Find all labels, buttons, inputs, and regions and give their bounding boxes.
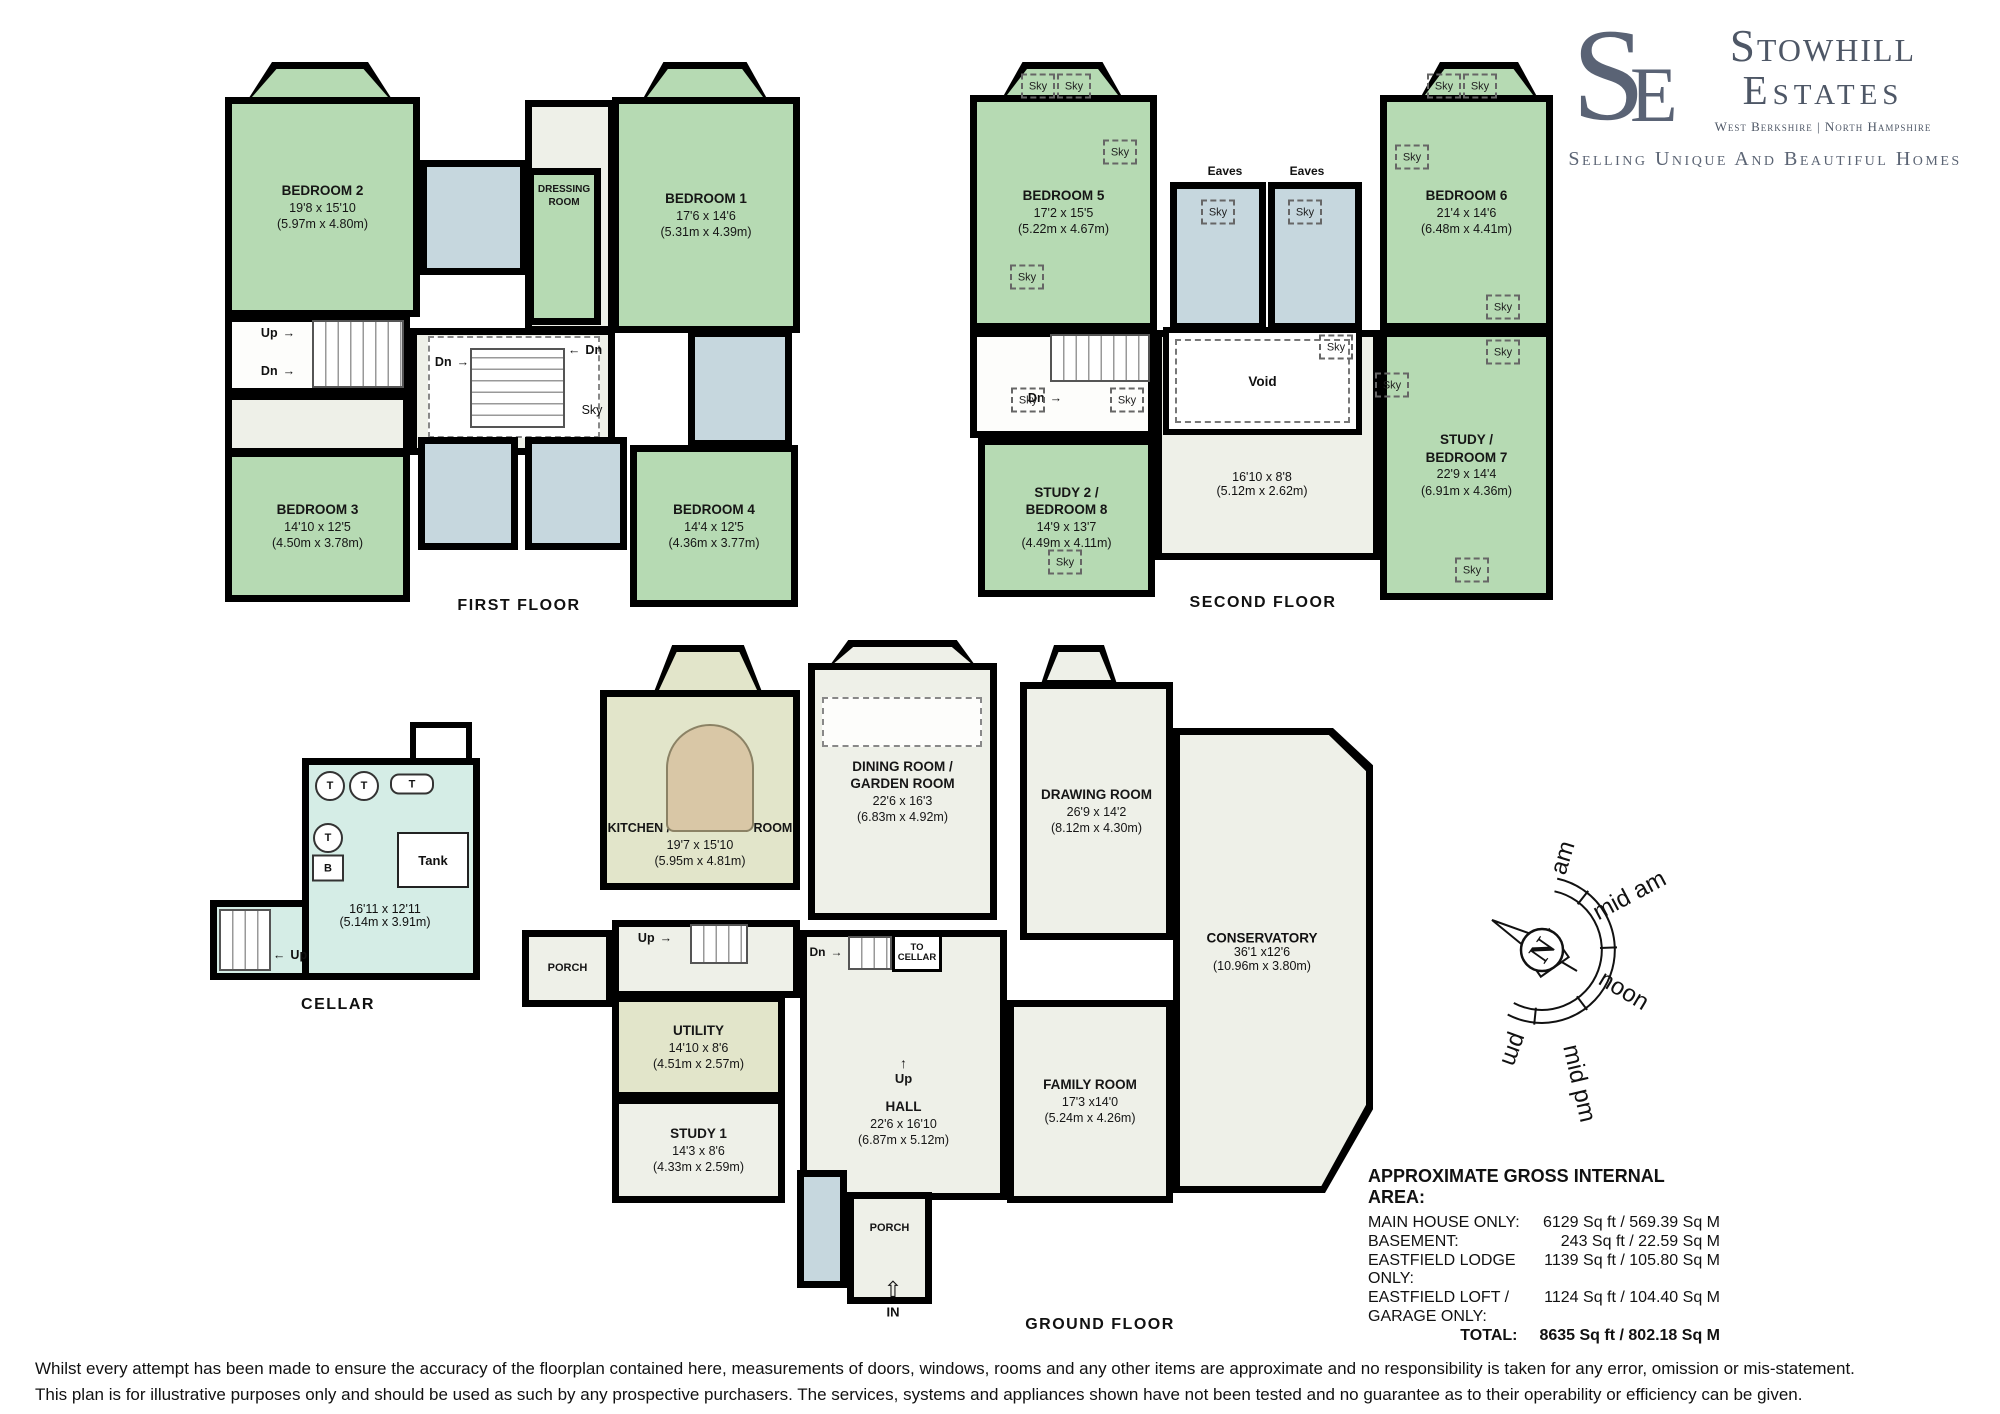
room-dims-ft: 14'10 x 12'5 [284, 519, 351, 535]
room-name: HALL [886, 1098, 922, 1116]
room-dims-ft: 19'7 x 15'10 [667, 837, 734, 853]
stairs [690, 924, 748, 964]
first-floor-caption: FIRST FLOOR [457, 597, 580, 615]
room-dims-ft: 21'4 x 14'6 [1437, 205, 1497, 221]
area-table: APPROXIMATE GROSS INTERNAL AREA: MAIN HO… [1368, 1166, 1720, 1346]
disclaimer: Whilst every attempt has been made to en… [35, 1356, 1975, 1407]
to-cellar-box: TO CELLAR [892, 934, 942, 972]
skylight-label: Sky [1463, 74, 1497, 99]
logo-name-line1: Stowhill [1692, 24, 1954, 69]
disclaimer-line-2: This plan is for illustrative purposes o… [35, 1382, 1975, 1408]
room-name: BEDROOM 1 [665, 190, 747, 208]
room-utility: UTILITY 14'10 x 8'6 (4.51m x 2.57m) [612, 995, 785, 1099]
stairs [470, 348, 565, 428]
entrance-in-label: IN [887, 1305, 900, 1320]
room-dims-ft: 17'3 x14'0 [1062, 1094, 1118, 1110]
room-dims-ft: 17'6 x 14'6 [676, 208, 736, 224]
room-dims-ft: 19'8 x 15'10 [289, 200, 356, 216]
arrow-right-icon: → [831, 945, 843, 959]
stairs [312, 320, 404, 388]
room-name-2: BEDROOM 7 [1426, 449, 1508, 467]
room-dims-ft: 26'9 x 14'2 [1067, 804, 1127, 820]
second-floor-caption: SECOND FLOOR [1190, 594, 1337, 612]
room-name: DINING ROOM / [852, 758, 953, 776]
room-bedroom-5: BEDROOM 5 17'2 x 15'5 (5.22m x 4.67m) [970, 95, 1157, 330]
room-name: STUDY / [1440, 431, 1493, 449]
room-bathroom-2 [418, 437, 518, 550]
room-name: UTILITY [673, 1022, 724, 1040]
room-porch-left: PORCH [522, 930, 613, 1007]
kitchen-island [666, 724, 754, 832]
area-row-label: EASTFIELD LODGE ONLY: [1368, 1252, 1544, 1290]
room-name: BEDROOM 2 [282, 182, 364, 200]
dining-step-area [822, 697, 982, 747]
table-row: BASEMENT: 243 Sq ft / 22.59 Sq M [1368, 1233, 1720, 1252]
room-name: STUDY 1 [670, 1125, 727, 1143]
cellar-dims-ft: 16'11 x 12'11 [349, 902, 421, 916]
arrow-right-icon: → [660, 931, 673, 945]
room-dims-m: (8.12m x 4.30m) [1051, 820, 1142, 836]
skylight-label: Sky [1110, 388, 1144, 413]
cellar-tank-t: T [349, 771, 379, 801]
room-bedroom-6: BEDROOM 6 21'4 x 14'6 (6.48m x 4.41m) [1380, 95, 1553, 330]
room-dims-ft: 14'9 x 13'7 [1037, 519, 1097, 535]
ground-floor-caption: GROUND FLOOR [1025, 1316, 1175, 1334]
area-row-value: 6129 Sq ft / 569.39 Sq M [1543, 1214, 1720, 1233]
room-study-1: STUDY 1 14'3 x 8'6 (4.33m x 2.59m) [612, 1097, 785, 1203]
area-table-title: APPROXIMATE GROSS INTERNAL AREA: [1368, 1166, 1720, 1208]
table-row: EASTFIELD LODGE ONLY: 1139 Sq ft / 105.8… [1368, 1252, 1720, 1290]
room-name-2: ROOM [548, 196, 579, 209]
room-name: BEDROOM 3 [277, 501, 359, 519]
logo-region: West Berkshire | North Hampshire [1692, 119, 1954, 135]
area-row-value: 8635 Sq ft / 802.18 Sq M [1539, 1327, 1720, 1346]
room-name: BEDROOM 5 [1023, 187, 1105, 205]
stairs-down-label: Dn→ [435, 355, 469, 369]
room-dims-ft: 14'10 x 8'6 [669, 1040, 729, 1056]
stairs-down-label: ←Dn [568, 343, 602, 357]
compass-label-am: am [1545, 838, 1581, 878]
room-bathroom-3 [525, 437, 627, 550]
room-dims-ft: 17'2 x 15'5 [1034, 205, 1094, 221]
cellar-tank-t: T [315, 771, 345, 801]
room-bedroom-1: BEDROOM 1 17'6 x 14'6 (5.31m x 4.39m) [612, 97, 800, 333]
skylight-label: Sky [1319, 335, 1353, 360]
conservatory-dims-m: (10.96m x 3.80m) [1213, 959, 1311, 973]
area-row-label: EASTFIELD LOFT / GARAGE ONLY: [1368, 1289, 1544, 1327]
arrow-left-icon: ← [568, 343, 581, 357]
stairs-down-label: Dn→ [810, 945, 843, 959]
skylight-label: Sky [1201, 200, 1235, 225]
first-floor-hall [225, 393, 410, 455]
conservatory-dims-ft: 36'1 x12'6 [1234, 945, 1290, 959]
arrow-right-icon: → [457, 355, 470, 369]
void-dims-m: (5.12m x 2.62m) [1216, 484, 1307, 498]
room-drawing: DRAWING ROOM 26'9 x 14'2 (8.12m x 4.30m) [1020, 682, 1173, 940]
stairs-up-label: Up→ [261, 326, 295, 340]
compass-rose: N am mid am noon mid pm pm [1420, 820, 1720, 1140]
room-name: BEDROOM 4 [673, 501, 755, 519]
table-row: EASTFIELD LOFT / GARAGE ONLY: 1124 Sq ft… [1368, 1289, 1720, 1327]
compass-label-pm: pm [1496, 1029, 1533, 1070]
table-row-total: TOTAL: 8635 Sq ft / 802.18 Sq M [1368, 1327, 1720, 1346]
eaves-label: Eaves [1290, 164, 1325, 178]
room-dims-m: (4.36m x 3.77m) [668, 535, 759, 551]
logo-monogram: S E [1572, 14, 1692, 144]
skylight-label: Sky [1010, 265, 1044, 290]
room-name: DRAWING ROOM [1041, 786, 1152, 804]
room-cloakroom-wc [797, 1170, 847, 1288]
room-bedroom-2: BEDROOM 2 19'8 x 15'10 (5.97m x 4.80m) [225, 97, 420, 317]
room-dims-m: (4.33m x 2.59m) [653, 1159, 744, 1175]
compass-label-mid-pm: mid pm [1557, 1042, 1601, 1125]
skylight-label: Sky [1021, 74, 1055, 99]
room-bedroom-3: BEDROOM 3 14'10 x 12'5 (4.50m x 3.78m) [225, 450, 410, 602]
area-row-label: MAIN HOUSE ONLY: [1368, 1214, 1520, 1233]
skylight-label: Sky [1427, 74, 1461, 99]
skylight-label: Sky [1103, 140, 1137, 165]
skylight-label: Sky [1395, 145, 1429, 170]
skylight-label: Sky [1375, 373, 1409, 398]
stairs-up-label: Up [895, 1071, 912, 1086]
floorplan-page: BEDROOM 2 19'8 x 15'10 (5.97m x 4.80m) D… [0, 0, 2000, 1414]
entrance-arrow-icon: ⇧ [884, 1277, 902, 1303]
room-dims-ft: 14'4 x 12'5 [684, 519, 744, 535]
room-dims-m: (5.31m x 4.39m) [660, 224, 751, 240]
table-row: MAIN HOUSE ONLY: 6129 Sq ft / 569.39 Sq … [1368, 1214, 1720, 1233]
arrow-left-icon: ← [273, 948, 286, 962]
cellar-tank: Tank [397, 832, 469, 888]
stairs-up-label: Up→ [638, 931, 672, 945]
room-bedroom-4: BEDROOM 4 14'4 x 12'5 (4.36m x 3.77m) [630, 445, 798, 607]
skylight-label: Sky [1486, 340, 1520, 365]
area-row-value: 1139 Sq ft / 105.80 Sq M [1544, 1252, 1720, 1290]
skylight-label: Sky [1288, 200, 1322, 225]
cellar-dims-m: (5.14m x 3.91m) [339, 915, 430, 929]
cellar-stairs [219, 909, 271, 971]
room-name-2: GARDEN ROOM [850, 775, 954, 793]
room-dims-m: (6.83m x 4.92m) [857, 809, 948, 825]
cellar-stairs [848, 936, 892, 970]
area-row-label: BASEMENT: [1368, 1233, 1459, 1252]
skylight-label: Sky [1057, 74, 1091, 99]
room-dims-m: (5.22m x 4.67m) [1018, 221, 1109, 237]
room-dims-ft: 22'6 x 16'3 [873, 793, 933, 809]
arrow-right-icon: → [283, 364, 296, 378]
void-dims-ft: 16'10 x 8'8 [1232, 470, 1292, 484]
porch-label: PORCH [548, 961, 588, 975]
logo-monogram-e: E [1630, 50, 1678, 140]
eaves-label: Eaves [1208, 164, 1243, 178]
stairs-down-label: Dn→ [261, 364, 295, 378]
area-row-label: TOTAL: [1460, 1327, 1517, 1346]
room-name-2: BEDROOM 8 [1026, 501, 1108, 519]
room-dims-m: (6.87m x 5.12m) [858, 1132, 949, 1148]
arrow-right-icon: → [283, 326, 296, 340]
void-label: Void [1248, 374, 1276, 389]
room-dims-ft: 14'3 x 8'6 [672, 1143, 725, 1159]
room-dims-m: (5.95m x 4.81m) [654, 853, 745, 869]
drawing-room-bay-window [1040, 645, 1118, 687]
cellar-tank-t: T [390, 774, 434, 795]
skylight-label: Sky [1011, 388, 1045, 413]
logo-tagline: Selling Unique And Beautiful Homes [1545, 148, 1985, 171]
arrow-right-icon: → [1050, 391, 1063, 405]
disclaimer-line-1: Whilst every attempt has been made to en… [35, 1356, 1975, 1382]
room-ensuite-bathroom-1 [420, 160, 527, 275]
room-dims-m: (6.91m x 4.36m) [1421, 483, 1512, 499]
room-dims-m: (4.51m x 2.57m) [653, 1056, 744, 1072]
cellar-caption: CELLAR [301, 996, 375, 1014]
room-name: STUDY 2 / [1034, 484, 1098, 502]
room-name: BEDROOM 6 [1426, 187, 1508, 205]
room-name: DRESSING [538, 183, 590, 196]
room-name: FAMILY ROOM [1043, 1076, 1137, 1094]
room-ensuite-bathroom-4 [688, 330, 792, 447]
room-dims-m: (4.50m x 3.78m) [272, 535, 363, 551]
skylight-label: Sky [1486, 295, 1520, 320]
skylight-label: Sky [1455, 558, 1489, 583]
compass-label-mid-am: mid am [1588, 865, 1670, 926]
room-dims-m: (5.24m x 4.26m) [1044, 1110, 1135, 1126]
sky-label: Sky [582, 403, 603, 417]
compass-label-noon: noon [1594, 965, 1654, 1016]
stairs [1050, 334, 1150, 382]
logo-wordmark: Stowhill Estates West Berkshire | North … [1692, 24, 1954, 135]
cellar-boiler-b: B [312, 855, 344, 882]
conservatory-name: CONSERVATORY [1206, 931, 1317, 946]
room-dims-ft: 22'9 x 14'4 [1437, 466, 1497, 482]
cellar-up-label: ←Up [273, 948, 307, 962]
porch-label: PORCH [870, 1221, 910, 1235]
cellar-tank-t: T [313, 823, 343, 853]
area-row-value: 1124 Sq ft / 104.40 Sq M [1544, 1289, 1720, 1327]
room-dims-ft: 22'6 x 16'10 [870, 1116, 937, 1132]
to-cellar-label-2: CELLAR [898, 953, 937, 963]
area-row-value: 243 Sq ft / 22.59 Sq M [1561, 1233, 1720, 1252]
room-dressing-room: DRESSING ROOM [527, 168, 601, 325]
room-family: FAMILY ROOM 17'3 x14'0 (5.24m x 4.26m) [1007, 1000, 1173, 1203]
room-dims-m: (5.97m x 4.80m) [277, 216, 368, 232]
room-dims-m: (6.48m x 4.41m) [1421, 221, 1512, 237]
skylight-label: Sky [1048, 550, 1082, 575]
logo-name-line2: Estates [1692, 69, 1954, 112]
arrow-up-icon: ↑ [900, 1055, 907, 1071]
